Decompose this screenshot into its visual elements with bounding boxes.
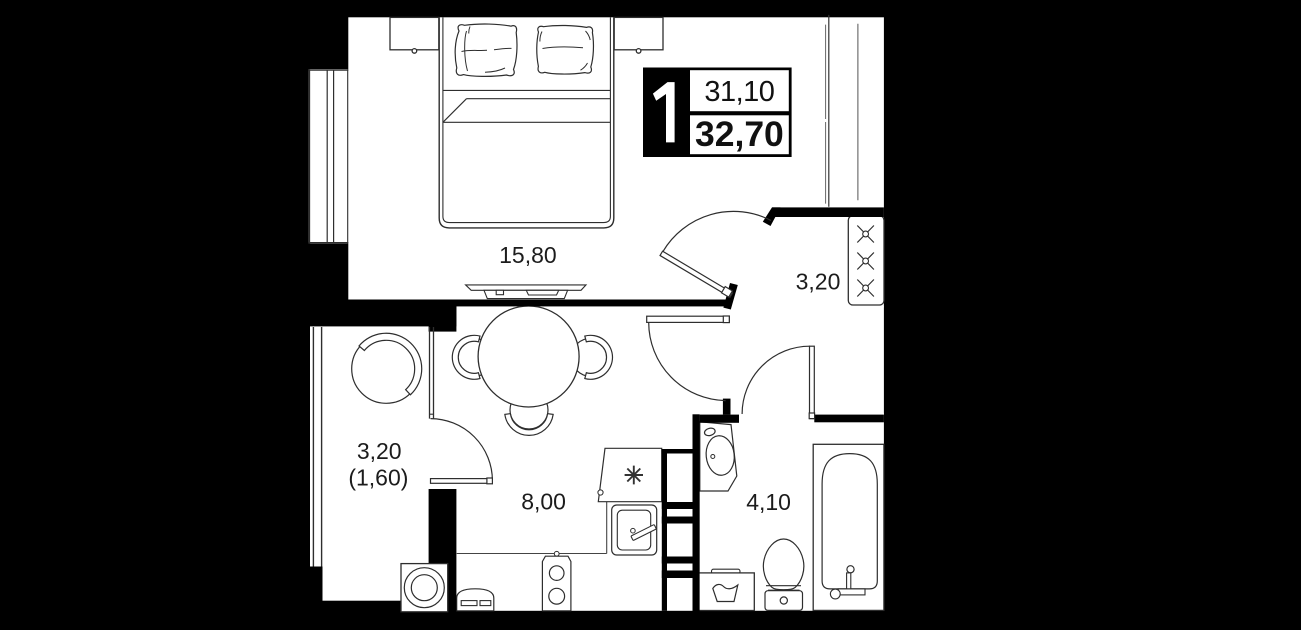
svg-text:32,70: 32,70 [695,114,784,154]
svg-text:3,20: 3,20 [796,269,841,295]
svg-text:4,10: 4,10 [746,489,791,515]
svg-text:8,00: 8,00 [521,488,566,514]
svg-text:15,80: 15,80 [499,242,557,268]
svg-text:31,10: 31,10 [704,76,774,108]
svg-text:3,20: 3,20 [357,438,402,464]
svg-text:(1,60): (1,60) [348,465,408,491]
